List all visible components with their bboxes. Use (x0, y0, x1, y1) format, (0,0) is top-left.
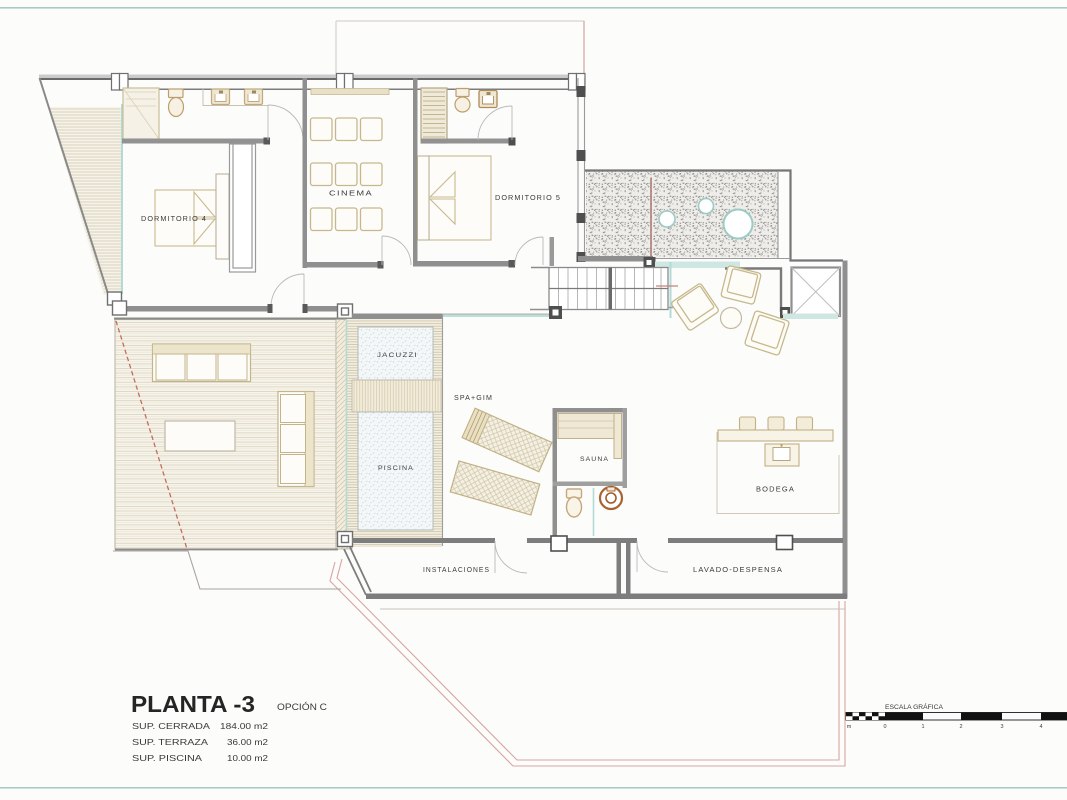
svg-text:4: 4 (1039, 724, 1042, 730)
svg-text:CINEMA: CINEMA (329, 191, 373, 198)
svg-text:SUP. CERRADA: SUP. CERRADA (132, 721, 211, 731)
svg-text:184.00 m2: 184.00 m2 (220, 721, 268, 731)
svg-text:SUP. PISCINA: SUP. PISCINA (132, 753, 203, 763)
svg-text:36.00 m2: 36.00 m2 (227, 737, 268, 747)
svg-text:BODEGA: BODEGA (756, 487, 795, 494)
svg-text:m: m (847, 724, 852, 730)
svg-text:0: 0 (883, 724, 886, 730)
svg-text:2: 2 (959, 724, 962, 730)
svg-text:SUP. TERRAZA: SUP. TERRAZA (132, 737, 209, 747)
svg-text:1: 1 (921, 724, 924, 730)
svg-text:SPA+GIM: SPA+GIM (454, 395, 493, 402)
svg-text:LAVADO-DESPENSA: LAVADO-DESPENSA (693, 567, 783, 574)
svg-text:JACUZZI: JACUZZI (377, 352, 418, 359)
svg-text:3: 3 (1000, 724, 1003, 730)
svg-text:PLANTA -3: PLANTA -3 (131, 691, 255, 717)
svg-text:DORMITORIO 4: DORMITORIO 4 (141, 214, 207, 223)
svg-text:PISCINA: PISCINA (378, 465, 414, 472)
svg-text:INSTALACIONES: INSTALACIONES (423, 567, 490, 574)
svg-text:ESCALA GRÁFICA: ESCALA GRÁFICA (885, 702, 944, 711)
svg-text:DORMITORIO 5: DORMITORIO 5 (495, 193, 561, 202)
svg-text:10.00 m2: 10.00 m2 (227, 753, 268, 763)
svg-text:SAUNA: SAUNA (580, 456, 609, 463)
svg-text:OPCIÓN C: OPCIÓN C (277, 702, 328, 712)
